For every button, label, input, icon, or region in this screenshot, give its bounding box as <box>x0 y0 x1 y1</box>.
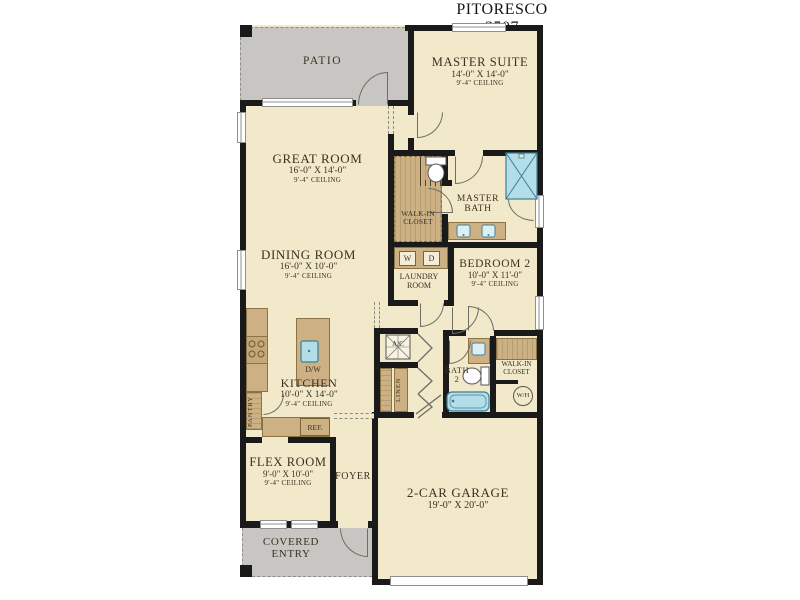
island-sink <box>301 341 318 362</box>
master-shower <box>506 153 537 199</box>
room-name: BEDROOM 2 <box>452 258 538 271</box>
foyer-label: FOYER <box>330 471 376 482</box>
bath2-tub <box>447 392 489 411</box>
bath2-label: BATH 2 <box>444 366 470 385</box>
bath2-sink <box>472 343 485 355</box>
laundry-room-label: LAUNDRY ROOM <box>392 273 446 291</box>
master-suite-label: MASTER SUITE 14'-0" X 14'-0" 9'-4" CEILI… <box>426 56 534 88</box>
room-ceiling: 9'-4" CEILING <box>244 480 332 488</box>
room-name: FLEX ROOM <box>244 456 332 470</box>
master-closet-label: WALK-IN CLOSET <box>394 210 442 227</box>
room-name: 2-CAR GARAGE <box>398 486 518 500</box>
dining-room-label: DINING ROOM 16'-0" X 10'-0" 9'-4" CEILIN… <box>256 248 361 280</box>
room-name: KITCHEN <box>253 377 365 390</box>
room-dims: 19'-0" X 20'-0" <box>398 500 518 511</box>
ac-label: A/C <box>383 341 413 349</box>
water-closet-toilet <box>426 157 446 182</box>
dishwasher-label: D/W <box>296 366 330 375</box>
garage-entry-door-leaf <box>416 395 441 414</box>
room-ceiling: 9'-4" CEILING <box>452 281 538 289</box>
kitchen-label: KITCHEN 10'-0" X 14'-0" 9'-4" CEILING <box>253 377 365 408</box>
patio-label: PATIO <box>280 55 365 68</box>
garage-label: 2-CAR GARAGE 19'-0" X 20'-0" <box>398 486 518 511</box>
room-ceiling: 9'-4" CEILING <box>256 273 361 281</box>
room-ceiling: 9'-4" CEILING <box>253 401 365 409</box>
cooktop-burners <box>249 341 264 357</box>
pantry-label: PANTRY <box>247 393 260 429</box>
room-name: DINING ROOM <box>256 248 361 262</box>
great-room-label: GREAT ROOM 16'-0" X 14'-0" 9'-4" CEILING <box>255 152 380 184</box>
linen-label: LINEN <box>395 370 407 410</box>
master-bath-label: MASTER BATH <box>450 194 506 215</box>
closet2-label: WALK-IN CLOSET <box>497 361 536 376</box>
bifold-doors <box>418 334 432 418</box>
room-name: GREAT ROOM <box>255 152 380 166</box>
room-ceiling: 9'-4" CEILING <box>426 80 534 88</box>
covered-entry-label: COVERED ENTRY <box>243 536 339 560</box>
room-ceiling: 9'-4" CEILING <box>255 177 380 185</box>
flex-room-label: FLEX ROOM 9'-0" X 10'-0" 9'-4" CEILING <box>244 456 332 487</box>
floor-plan: PITORESCO 3507 <box>0 0 800 600</box>
water-heater-label: W/H <box>509 392 537 399</box>
master-vanity-sinks <box>457 225 495 237</box>
room-name: MASTER SUITE <box>426 56 534 70</box>
bedroom2-label: BEDROOM 2 10'-0" X 11'-0" 9'-4" CEILING <box>452 258 538 288</box>
